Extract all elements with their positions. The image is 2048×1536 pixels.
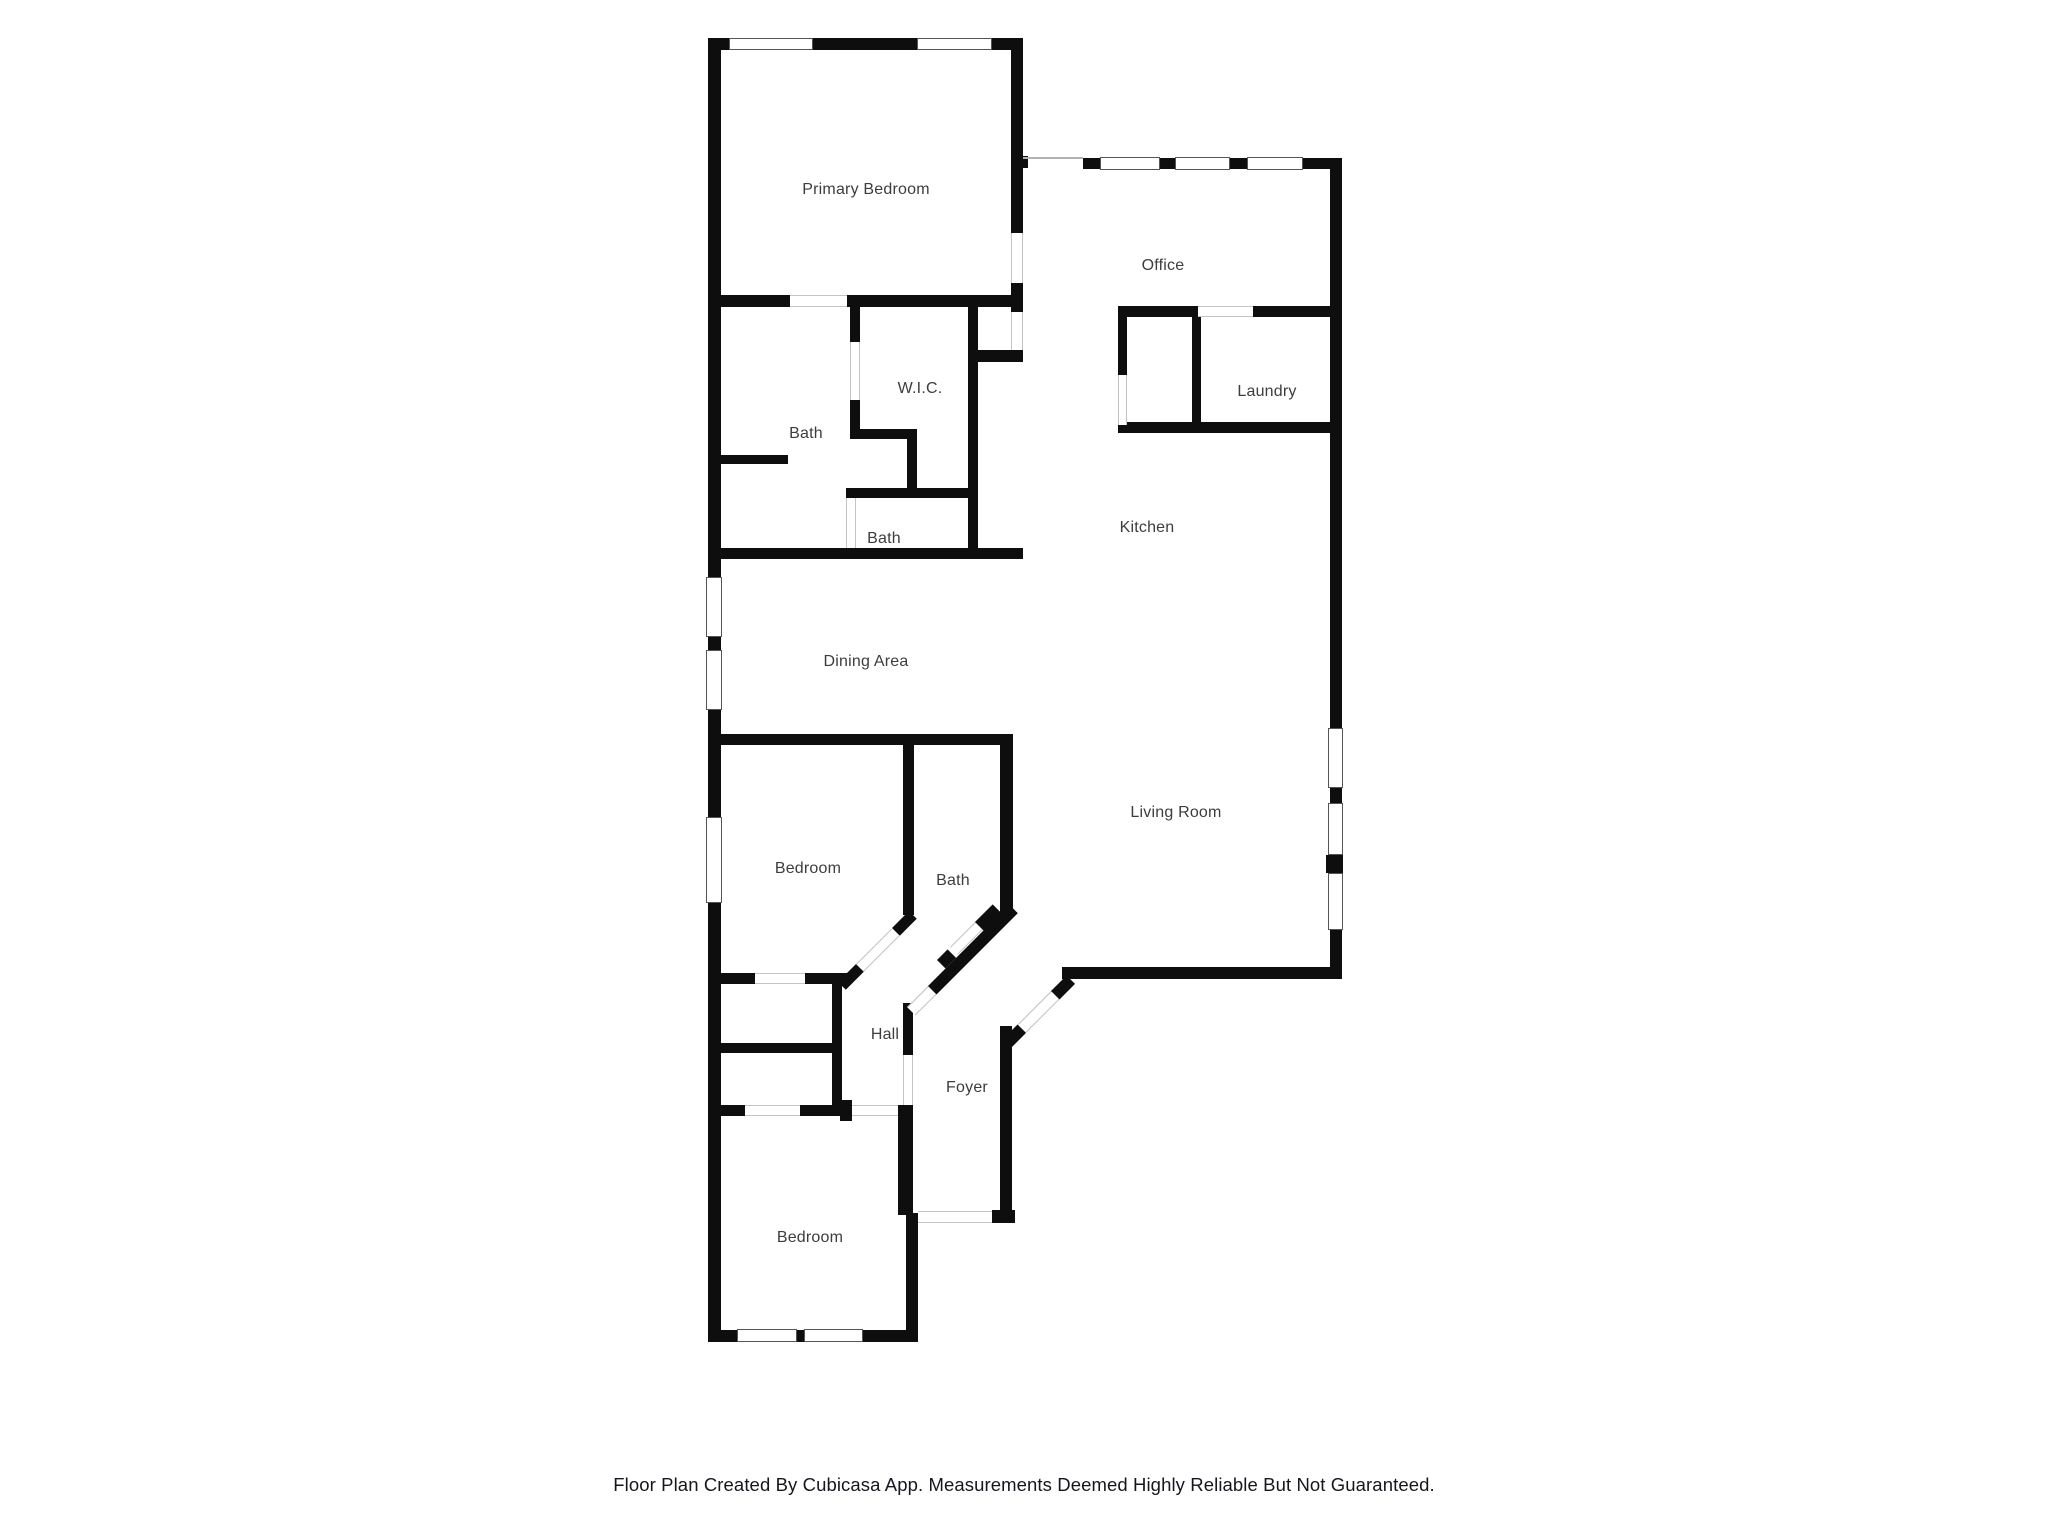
window [1328,873,1343,930]
floor-plan-canvas: Primary BedroomOfficeW.I.C.BathLaundryBa… [0,0,2048,1536]
wall-segment [1118,306,1127,375]
wall-segment [1326,855,1343,873]
window [917,38,992,50]
wall-segment [850,429,915,439]
wall-segment [840,1100,852,1121]
wall-segment [1000,734,1013,915]
window [729,38,813,50]
room-label-kitchen: Kitchen [1120,519,1175,537]
window [1328,803,1343,855]
diagonal-wall-segment [892,911,917,936]
wall-segment [1330,158,1342,728]
wall-segment [708,637,721,650]
diagonal-wall-segment [928,904,1018,994]
window [1100,157,1160,170]
window [737,1329,797,1342]
wall-segment [813,38,917,50]
wall-segment [1000,1026,1012,1213]
window [1247,157,1303,170]
wall-segment [800,1105,840,1116]
door-opening [790,295,847,307]
door-opening [1011,312,1023,350]
diagonal-door-opening [1018,990,1060,1032]
wall-segment [1160,158,1175,169]
wall-segment [1303,158,1342,169]
room-label-bedroom-bottom: Bedroom [777,1229,843,1247]
wall-segment [708,1105,745,1116]
wall-segment [992,1210,1015,1223]
room-label-bath-primary: Bath [789,425,823,443]
wall-segment [708,1043,842,1053]
room-label-wic: W.I.C. [898,380,943,398]
wall-segment [847,295,1013,307]
floor-plan-page: Primary BedroomOfficeW.I.C.BathLaundryBa… [0,0,2048,1536]
wall-segment [850,295,860,342]
room-label-laundry: Laundry [1237,383,1296,401]
wall-segment [1253,306,1342,317]
room-label-foyer: Foyer [946,1079,988,1097]
wall-segment [708,710,721,817]
wall-segment [832,983,842,1105]
room-label-bath-second: Bath [867,530,901,548]
wall-segment [907,429,917,496]
wall-segment [797,1330,804,1342]
wall-segment [898,1105,913,1215]
room-label-hall: Hall [871,1026,899,1044]
wall-segment [906,1213,918,1342]
door-opening [852,1105,898,1116]
door-opening [755,973,805,984]
room-label-dining-area: Dining Area [824,653,909,671]
wall-segment [1118,306,1198,317]
open-boundary-line [1023,157,1083,159]
wall-segment [1011,38,1023,233]
room-label-living-room: Living Room [1130,804,1221,822]
wall-segment [1118,422,1342,433]
door-opening [1198,306,1253,317]
wall-segment [903,745,914,915]
door-opening [1118,375,1127,425]
wall-segment [708,903,721,1342]
room-label-bath-hall: Bath [936,872,970,890]
room-label-primary-bedroom: Primary Bedroom [802,181,929,199]
window [1328,728,1343,788]
window [804,1329,863,1342]
wall-segment [1083,158,1100,169]
wall-segment [718,734,1013,745]
diagonal-door-opening [856,928,899,971]
door-opening [918,1211,992,1223]
door-opening [1011,233,1023,283]
wall-segment [1192,306,1201,433]
room-label-office: Office [1142,257,1185,275]
wall-segment [1330,930,1342,979]
wall-segment [708,1330,737,1342]
room-label-bedroom-middle: Bedroom [775,860,841,878]
footer-disclaimer: Floor Plan Created By Cubicasa App. Meas… [0,1474,2048,1496]
door-opening [850,342,860,400]
door-opening [846,498,856,548]
wall-segment [1062,967,1342,979]
wall-segment [968,295,978,559]
wall-segment [863,1330,918,1342]
wall-segment [1230,158,1247,169]
window [1175,157,1230,170]
wall-segment [708,455,788,464]
wall-segment [708,973,755,984]
wall-segment [708,38,721,577]
wall-segment [708,548,1023,559]
window [706,650,722,710]
window [706,577,722,637]
window [706,817,722,903]
wall-segment [708,295,790,307]
wall-segment [1330,788,1342,803]
door-opening [903,1055,913,1105]
wall-segment [846,488,978,498]
door-opening [745,1105,800,1116]
